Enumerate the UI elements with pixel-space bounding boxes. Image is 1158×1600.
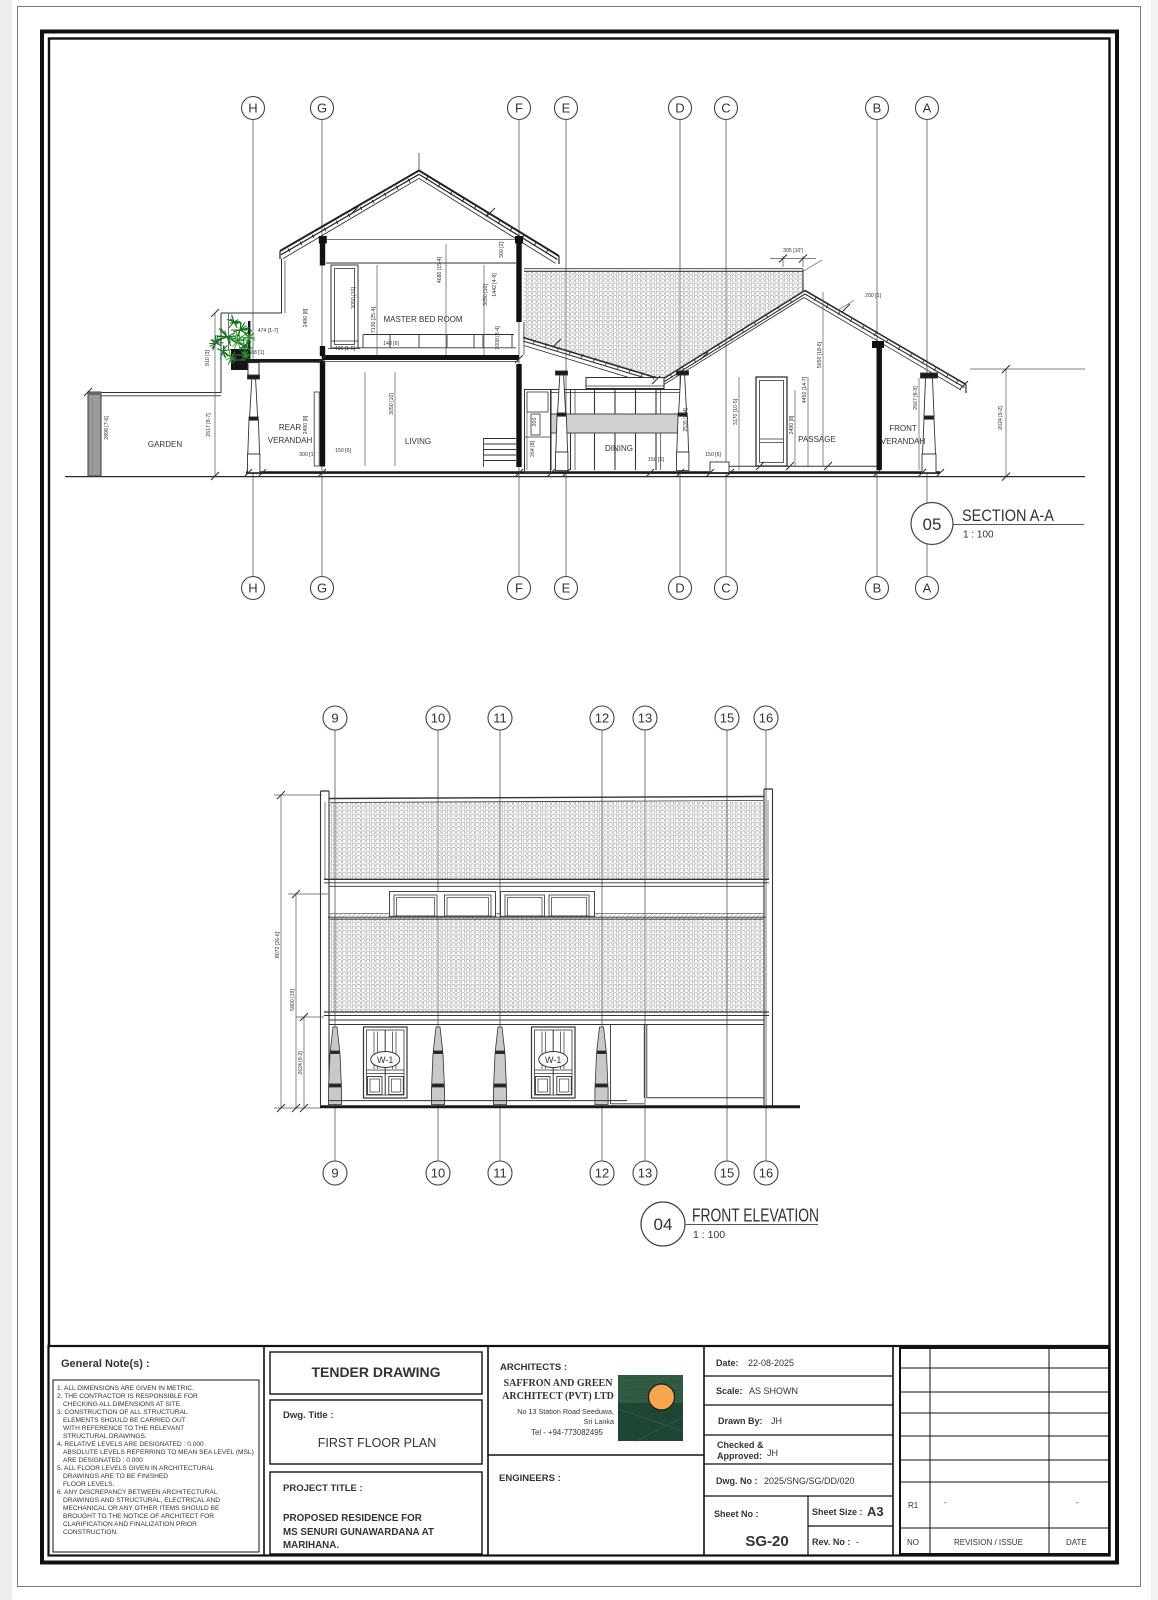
svg-text:FRONT: FRONT: [889, 424, 917, 433]
svg-text:PASSAGE: PASSAGE: [798, 435, 836, 444]
svg-text:Sheet No :: Sheet No :: [714, 1509, 759, 1519]
svg-text:SG-20: SG-20: [745, 1533, 788, 1550]
svg-text:D: D: [675, 581, 684, 596]
svg-text:16: 16: [759, 1166, 773, 1181]
svg-text:A3: A3: [867, 1504, 884, 1519]
svg-text:NO: NO: [907, 1538, 919, 1547]
svg-text:435 [1-5]: 435 [1-5]: [335, 346, 356, 352]
svg-text:G: G: [317, 101, 327, 116]
svg-text:5800 [19]: 5800 [19]: [290, 989, 296, 1011]
svg-text:22-08-2025: 22-08-2025: [748, 1358, 794, 1368]
svg-text:910 [3]: 910 [3]: [205, 350, 211, 366]
svg-text:-: -: [856, 1537, 859, 1547]
svg-text:1. ALL DIMENSIONS ARE GIVEN IN: 1. ALL DIMENSIONS ARE GIVEN IN METRIC.: [57, 1385, 194, 1392]
svg-text:ELEMENTS SHOULD BE CARRIED OU: ELEMENTS SHOULD BE CARRIED OUT: [63, 1417, 186, 1424]
svg-text:ENGINEERS :: ENGINEERS :: [499, 1473, 561, 1484]
svg-text:1 : 100: 1 : 100: [693, 1229, 725, 1241]
svg-text:-: -: [1076, 1498, 1079, 1507]
svg-text:DRAWINGS ARE TO BE FINISHED: DRAWINGS ARE TO BE FINISHED: [63, 1473, 168, 1480]
svg-text:2490 [8]: 2490 [8]: [789, 415, 795, 434]
svg-text:300 [2]: 300 [2]: [499, 242, 505, 258]
svg-text:474 [1-7]: 474 [1-7]: [258, 328, 279, 334]
svg-text:9: 9: [331, 711, 338, 726]
svg-text:JH: JH: [771, 1416, 782, 1426]
svg-text:5. ALL FLOOR LEVELS GIVEN IN A: 5. ALL FLOOR LEVELS GIVEN IN ARCHITECTUR…: [57, 1465, 215, 1472]
svg-text:STRUCTURAL DRAWINGS.: STRUCTURAL DRAWINGS.: [63, 1433, 147, 1440]
svg-text:11: 11: [493, 711, 507, 726]
svg-text:1 : 100: 1 : 100: [963, 530, 994, 541]
svg-text:A: A: [923, 101, 932, 116]
svg-text:2535 [8-4]: 2535 [8-4]: [683, 408, 689, 432]
svg-text:Scale:: Scale:: [716, 1386, 743, 1396]
svg-text:MS SENURI GUNAWARDANA AT: MS SENURI GUNAWARDANA AT: [283, 1527, 434, 1538]
svg-text:B: B: [873, 581, 882, 596]
svg-text:2024 [9-2]: 2024 [9-2]: [998, 406, 1004, 430]
svg-text:3050 [10]: 3050 [10]: [351, 287, 357, 309]
svg-text:9: 9: [331, 1166, 338, 1181]
svg-text:150 [6]: 150 [6]: [648, 457, 664, 463]
svg-text:General Note(s) :: General Note(s) :: [61, 1358, 150, 1370]
svg-text:D: D: [675, 101, 684, 116]
svg-text:FLOOR LEVELS.: FLOOR LEVELS.: [63, 1481, 114, 1488]
svg-text:148 [6]: 148 [6]: [383, 341, 399, 347]
svg-text:PROPOSED RESIDENCE FOR: PROPOSED RESIDENCE FOR: [283, 1513, 422, 1524]
svg-text:2490 [8]: 2490 [8]: [303, 308, 309, 327]
svg-text:Tel - +94-773082495: Tel - +94-773082495: [531, 1428, 603, 1437]
svg-text:4680 [15-4]: 4680 [15-4]: [437, 256, 443, 283]
svg-text:F: F: [515, 101, 523, 116]
svg-text:Drawn By:: Drawn By:: [718, 1416, 763, 1426]
svg-text:4450 [14-7]: 4450 [14-7]: [802, 376, 808, 403]
svg-text:264 [8]: 264 [8]: [530, 441, 536, 457]
svg-text:12: 12: [595, 1166, 609, 1181]
svg-text:2667 [8-9]: 2667 [8-9]: [913, 386, 919, 410]
svg-text:Checked &: Checked &: [717, 1440, 764, 1450]
svg-text:W-1: W-1: [545, 1055, 561, 1065]
svg-text:3. CONSTRUCTION OF ALL STRUCTU: 3. CONSTRUCTION OF ALL STRUCTURAL: [57, 1409, 188, 1416]
svg-text:DRAWINGS AND STRUCTURAL, ELECT: DRAWINGS AND STRUCTURAL, ELECTRICAL AND: [63, 1497, 220, 1504]
svg-text:04: 04: [654, 1215, 673, 1234]
svg-text:ABSOLUTE LEVELS REFERRING TO M: ABSOLUTE LEVELS REFERRING TO MEAN SEA LE…: [63, 1449, 254, 1456]
svg-text:REVISION / ISSUE: REVISION / ISSUE: [954, 1538, 1023, 1547]
svg-text:Approved:: Approved:: [717, 1451, 762, 1461]
svg-text:15: 15: [720, 711, 734, 726]
svg-text:A: A: [923, 581, 932, 596]
svg-text:F: F: [515, 581, 523, 596]
svg-text:FRONT ELEVATION: FRONT ELEVATION: [692, 1206, 819, 1226]
svg-text:H: H: [248, 581, 257, 596]
svg-text:ARCHITECT (PVT) LTD: ARCHITECT (PVT) LTD: [502, 1391, 614, 1402]
svg-text:15: 15: [720, 1166, 734, 1181]
svg-text:150 [6]: 150 [6]: [705, 452, 721, 458]
svg-text:300 [1]: 300 [1]: [299, 452, 315, 458]
svg-text:2898 [7-6]: 2898 [7-6]: [104, 416, 110, 440]
svg-text:6. ANY DISCREPANCY BETWEEN ARC: 6. ANY DISCREPANCY BETWEEN ARCHITECTURAL: [57, 1489, 218, 1496]
svg-text:3170 [10-5]: 3170 [10-5]: [733, 398, 739, 425]
svg-text:TENDER DRAWING: TENDER DRAWING: [311, 1364, 440, 1380]
svg-text:2025/SNG/SG/DD/020: 2025/SNG/SG/DD/020: [764, 1476, 855, 1486]
svg-text:7130 [25-4]: 7130 [25-4]: [371, 306, 377, 333]
svg-text:2624 [9-2]: 2624 [9-2]: [298, 1051, 304, 1075]
svg-text:ARE DESIGNATED : 0.000: ARE DESIGNATED : 0.000: [63, 1457, 143, 1464]
svg-text:C: C: [721, 101, 730, 116]
svg-text:05: 05: [923, 515, 942, 534]
svg-text:JH: JH: [767, 1448, 778, 1458]
svg-text:3050 [10]: 3050 [10]: [483, 284, 489, 306]
svg-text:B: B: [873, 101, 882, 116]
svg-text:W-1: W-1: [377, 1055, 393, 1065]
svg-text:E: E: [562, 101, 571, 116]
svg-text:AS SHOWN: AS SHOWN: [749, 1386, 798, 1396]
svg-text:H: H: [248, 101, 257, 116]
svg-text:SECTION A-A: SECTION A-A: [962, 507, 1054, 525]
svg-text:200: 200: [532, 418, 538, 427]
svg-text:Sri Lanka: Sri Lanka: [584, 1417, 614, 1426]
svg-text:13: 13: [638, 1166, 652, 1181]
svg-text:C: C: [721, 581, 730, 596]
svg-text:2617 [8-7]: 2617 [8-7]: [206, 413, 212, 437]
svg-text:2490 [8]: 2490 [8]: [303, 415, 309, 434]
svg-text:Rev. No :: Rev. No :: [812, 1537, 850, 1547]
svg-text:10: 10: [431, 711, 445, 726]
svg-text:11: 11: [493, 1166, 507, 1181]
svg-text:13: 13: [638, 711, 652, 726]
svg-text:FIRST FLOOR PLAN: FIRST FLOOR PLAN: [318, 1436, 437, 1450]
svg-text:DATE: DATE: [1066, 1538, 1087, 1547]
svg-text:REAR: REAR: [279, 423, 301, 432]
svg-text:G: G: [317, 581, 327, 596]
svg-text:305 [10']: 305 [10']: [783, 248, 803, 254]
svg-text:PROJECT TITLE :: PROJECT TITLE :: [283, 1483, 363, 1494]
svg-text:LIVING: LIVING: [405, 437, 431, 446]
svg-text:ARCHITECTS :: ARCHITECTS :: [500, 1362, 567, 1373]
svg-text:16: 16: [759, 711, 773, 726]
svg-text:MECHANICAL OR ANY OTHER ITEMS: MECHANICAL OR ANY OTHER ITEMS SHOULD BE: [63, 1505, 220, 1512]
svg-text:150 [6]: 150 [6]: [335, 448, 351, 454]
svg-text:Sheet Size :: Sheet Size :: [812, 1507, 863, 1517]
svg-text:VERANDAH: VERANDAH: [268, 436, 313, 445]
svg-text:5650 [18-6]: 5650 [18-6]: [817, 341, 823, 368]
svg-text:8072 [26-6]: 8072 [26-6]: [275, 931, 281, 958]
svg-text:10: 10: [431, 1166, 445, 1181]
svg-text:12: 12: [595, 711, 609, 726]
svg-text:E: E: [562, 581, 571, 596]
svg-text:1008 [3-4]: 1008 [3-4]: [495, 326, 501, 350]
svg-text:-: -: [944, 1498, 947, 1507]
svg-text:3050 [10]: 3050 [10]: [389, 393, 395, 415]
svg-text:WITH REFERENCE TO THE RELEVANT: WITH REFERENCE TO THE RELEVANT: [63, 1425, 184, 1432]
svg-text:200 [1]: 200 [1]: [865, 293, 881, 299]
svg-text:Dwg. Title :: Dwg. Title :: [283, 1410, 334, 1421]
svg-text:BROUGHT TO THE NOTICE OF ARCHI: BROUGHT TO THE NOTICE OF ARCHITECT FOR: [63, 1513, 214, 1520]
svg-text:DINING: DINING: [605, 444, 633, 453]
svg-text:CONSTRUCTION.: CONSTRUCTION.: [63, 1529, 118, 1536]
svg-text:MASTER BED ROOM: MASTER BED ROOM: [383, 315, 462, 324]
svg-text:MARIHANA.: MARIHANA.: [283, 1540, 339, 1551]
svg-text:SAFFRON AND GREEN: SAFFRON AND GREEN: [504, 1378, 614, 1389]
svg-text:2. THE CONTRACTOR IS RESPONSIB: 2. THE CONTRACTOR IS RESPONSIBLE FOR: [57, 1393, 198, 1400]
svg-text:Date:: Date:: [716, 1358, 739, 1368]
svg-text:CLARIFICATION AND FINALIZATION: CLARIFICATION AND FINALIZATION PRIOR: [63, 1521, 197, 1528]
svg-text:Dwg. No :: Dwg. No :: [716, 1476, 758, 1486]
svg-text:1442 [4-9]: 1442 [4-9]: [492, 273, 498, 297]
svg-text:No 13 Station Road Seeduwa,: No 13 Station Road Seeduwa,: [517, 1407, 614, 1416]
svg-text:CHECKING ALL DIMENSIONS AT SIT: CHECKING ALL DIMENSIONS AT SITE.: [63, 1401, 182, 1408]
svg-text:R1: R1: [908, 1501, 919, 1510]
svg-text:GARDEN: GARDEN: [148, 440, 182, 449]
svg-text:308 [1]: 308 [1]: [248, 350, 264, 356]
svg-text:4. RELATIVE LEVELS ARE DESIGNA: 4. RELATIVE LEVELS ARE DESIGNATED : 0.00…: [57, 1441, 204, 1448]
